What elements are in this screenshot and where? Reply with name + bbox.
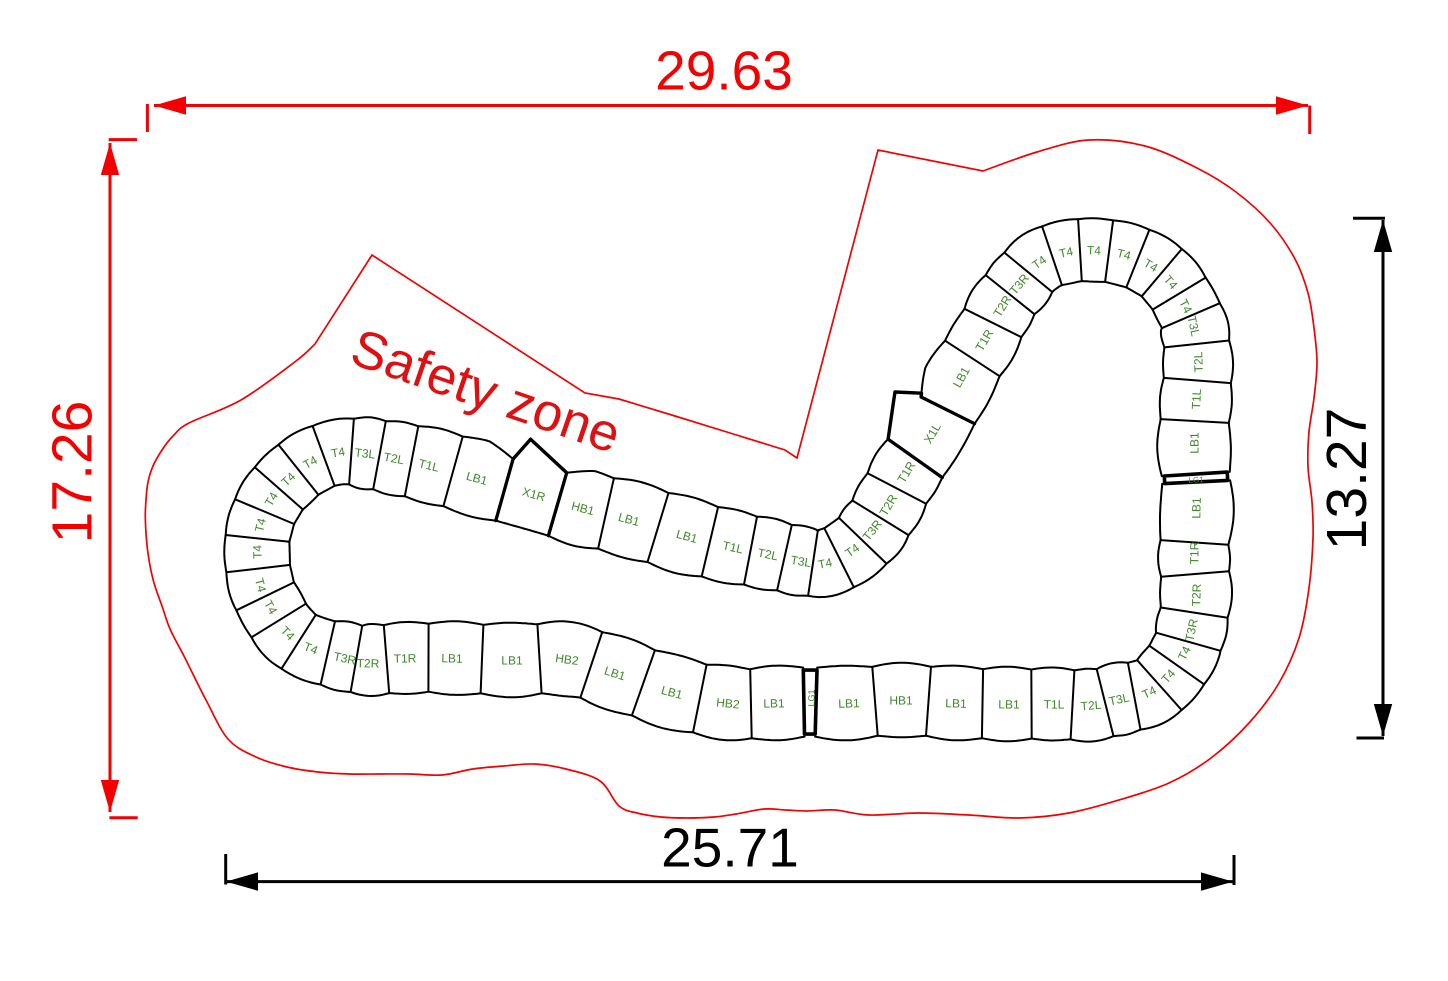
svg-text:T4: T4 [1115,246,1132,263]
svg-text:LB1: LB1 [950,364,973,390]
svg-text:T4: T4 [250,545,264,560]
svg-text:T3L: T3L [1108,690,1132,708]
svg-text:HB1: HB1 [889,693,913,707]
svg-text:T4: T4 [302,639,321,657]
svg-text:T4: T4 [1161,272,1181,292]
svg-text:T4: T4 [252,577,269,594]
svg-text:T4: T4 [301,453,320,472]
svg-text:T1R: T1R [895,459,919,486]
svg-text:T2L: T2L [756,546,779,564]
svg-text:29.63: 29.63 [655,40,793,102]
svg-text:17.26: 17.26 [41,401,105,544]
svg-text:T2R: T2R [877,492,901,519]
svg-text:T4: T4 [1140,683,1159,702]
svg-text:T4: T4 [278,623,298,643]
svg-text:T4: T4 [262,489,281,509]
svg-text:T4: T4 [1087,243,1102,257]
svg-text:X1R: X1R [521,485,548,505]
svg-text:LB1: LB1 [1189,497,1204,519]
svg-text:LB1: LB1 [660,683,685,702]
svg-text:T4: T4 [261,598,280,617]
svg-text:13.27: 13.27 [1315,408,1379,551]
svg-text:LB1: LB1 [998,697,1020,711]
svg-text:LB1: LB1 [465,469,490,488]
svg-text:T4: T4 [1030,252,1050,272]
svg-text:T4: T4 [1141,256,1160,275]
svg-text:T3L: T3L [790,553,813,570]
svg-text:T2R: T2R [357,656,380,670]
svg-text:LB1: LB1 [945,696,967,711]
svg-text:LB1: LB1 [441,651,463,665]
svg-text:T1L: T1L [721,538,745,556]
svg-text:T3R: T3R [1007,271,1033,298]
svg-text:LB1: LB1 [763,696,785,710]
svg-text:T4: T4 [1175,644,1194,663]
svg-text:T3L: T3L [354,445,376,461]
svg-text:T2L: T2L [1191,351,1206,372]
svg-text:LG1: LG1 [806,689,816,706]
svg-text:T4: T4 [278,469,298,489]
svg-text:LG1: LG1 [1188,475,1204,485]
svg-text:T3R: T3R [1182,617,1200,642]
svg-text:T3R: T3R [332,649,357,667]
svg-text:T2R: T2R [1189,583,1204,606]
svg-text:T1R: T1R [973,327,997,354]
svg-text:LB1: LB1 [1187,432,1201,454]
svg-text:LB1: LB1 [603,664,628,684]
svg-text:T1L: T1L [417,456,441,475]
svg-text:T4: T4 [1158,666,1178,686]
svg-text:25.71: 25.71 [661,817,799,879]
svg-text:LB1: LB1 [838,696,860,711]
svg-text:T4: T4 [1176,297,1195,316]
svg-text:T4: T4 [817,555,834,572]
svg-text:LB1: LB1 [501,653,523,667]
svg-text:LB1: LB1 [675,527,700,546]
svg-text:T3R: T3R [860,517,885,544]
svg-text:HB1: HB1 [570,499,596,519]
svg-text:HB2: HB2 [716,695,741,711]
svg-text:T4: T4 [330,444,346,460]
svg-text:HB2: HB2 [554,651,579,668]
svg-text:T1L: T1L [1189,388,1204,410]
svg-text:X1L: X1L [921,420,944,446]
svg-text:Safety zone: Safety zone [344,318,628,465]
svg-text:T2L: T2L [1080,698,1102,714]
svg-text:T2R: T2R [991,293,1015,320]
svg-text:T2L: T2L [382,450,405,468]
svg-text:T4: T4 [1058,244,1075,261]
svg-text:LB1: LB1 [617,510,642,529]
svg-text:T4: T4 [843,540,863,560]
svg-text:T4: T4 [252,516,269,533]
svg-text:T3L: T3L [1184,315,1202,339]
svg-text:T1L: T1L [1044,697,1065,711]
svg-text:T1R: T1R [1187,541,1201,564]
svg-text:T1R: T1R [394,651,417,666]
